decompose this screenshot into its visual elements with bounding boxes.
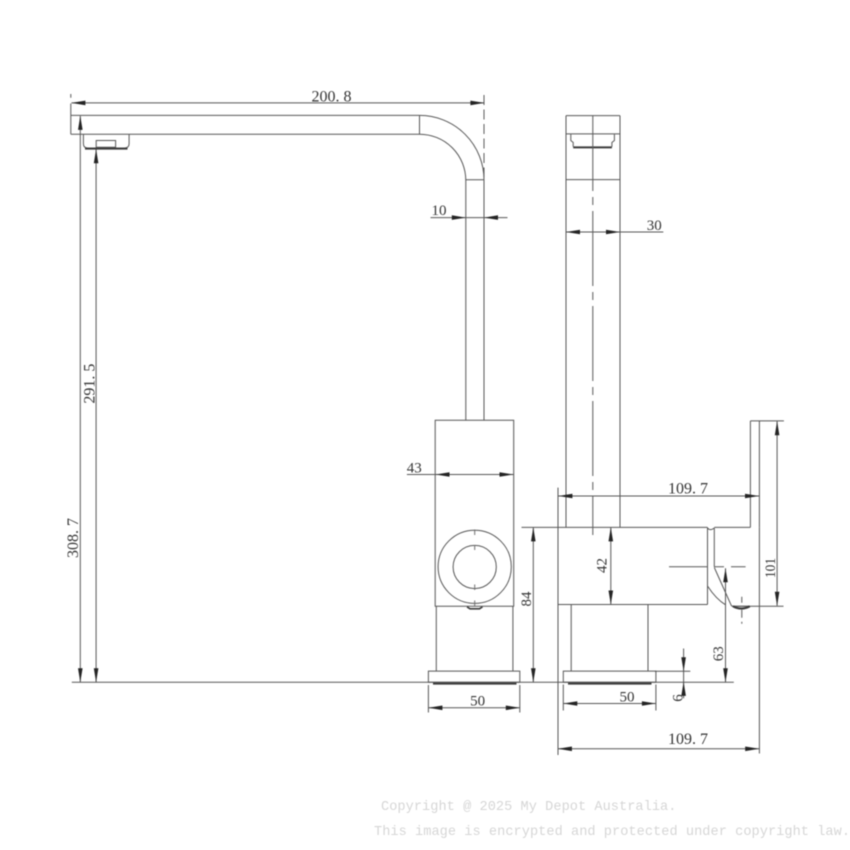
svg-text:101: 101 — [763, 558, 779, 578]
svg-text:200. 8: 200. 8 — [312, 88, 352, 105]
svg-text:10: 10 — [432, 203, 447, 219]
svg-text:50: 50 — [620, 690, 635, 706]
svg-text:43: 43 — [407, 461, 422, 477]
svg-text:42: 42 — [595, 558, 611, 573]
svg-text:30: 30 — [647, 218, 662, 234]
svg-text:109. 7: 109. 7 — [668, 731, 708, 748]
svg-text:84: 84 — [519, 591, 535, 607]
svg-text:50: 50 — [470, 694, 485, 710]
svg-text:6: 6 — [670, 694, 686, 702]
svg-text:291. 5: 291. 5 — [82, 364, 99, 404]
svg-text:63: 63 — [711, 646, 727, 661]
svg-text:109. 7: 109. 7 — [668, 480, 708, 497]
svg-text:308. 7: 308. 7 — [65, 518, 82, 558]
